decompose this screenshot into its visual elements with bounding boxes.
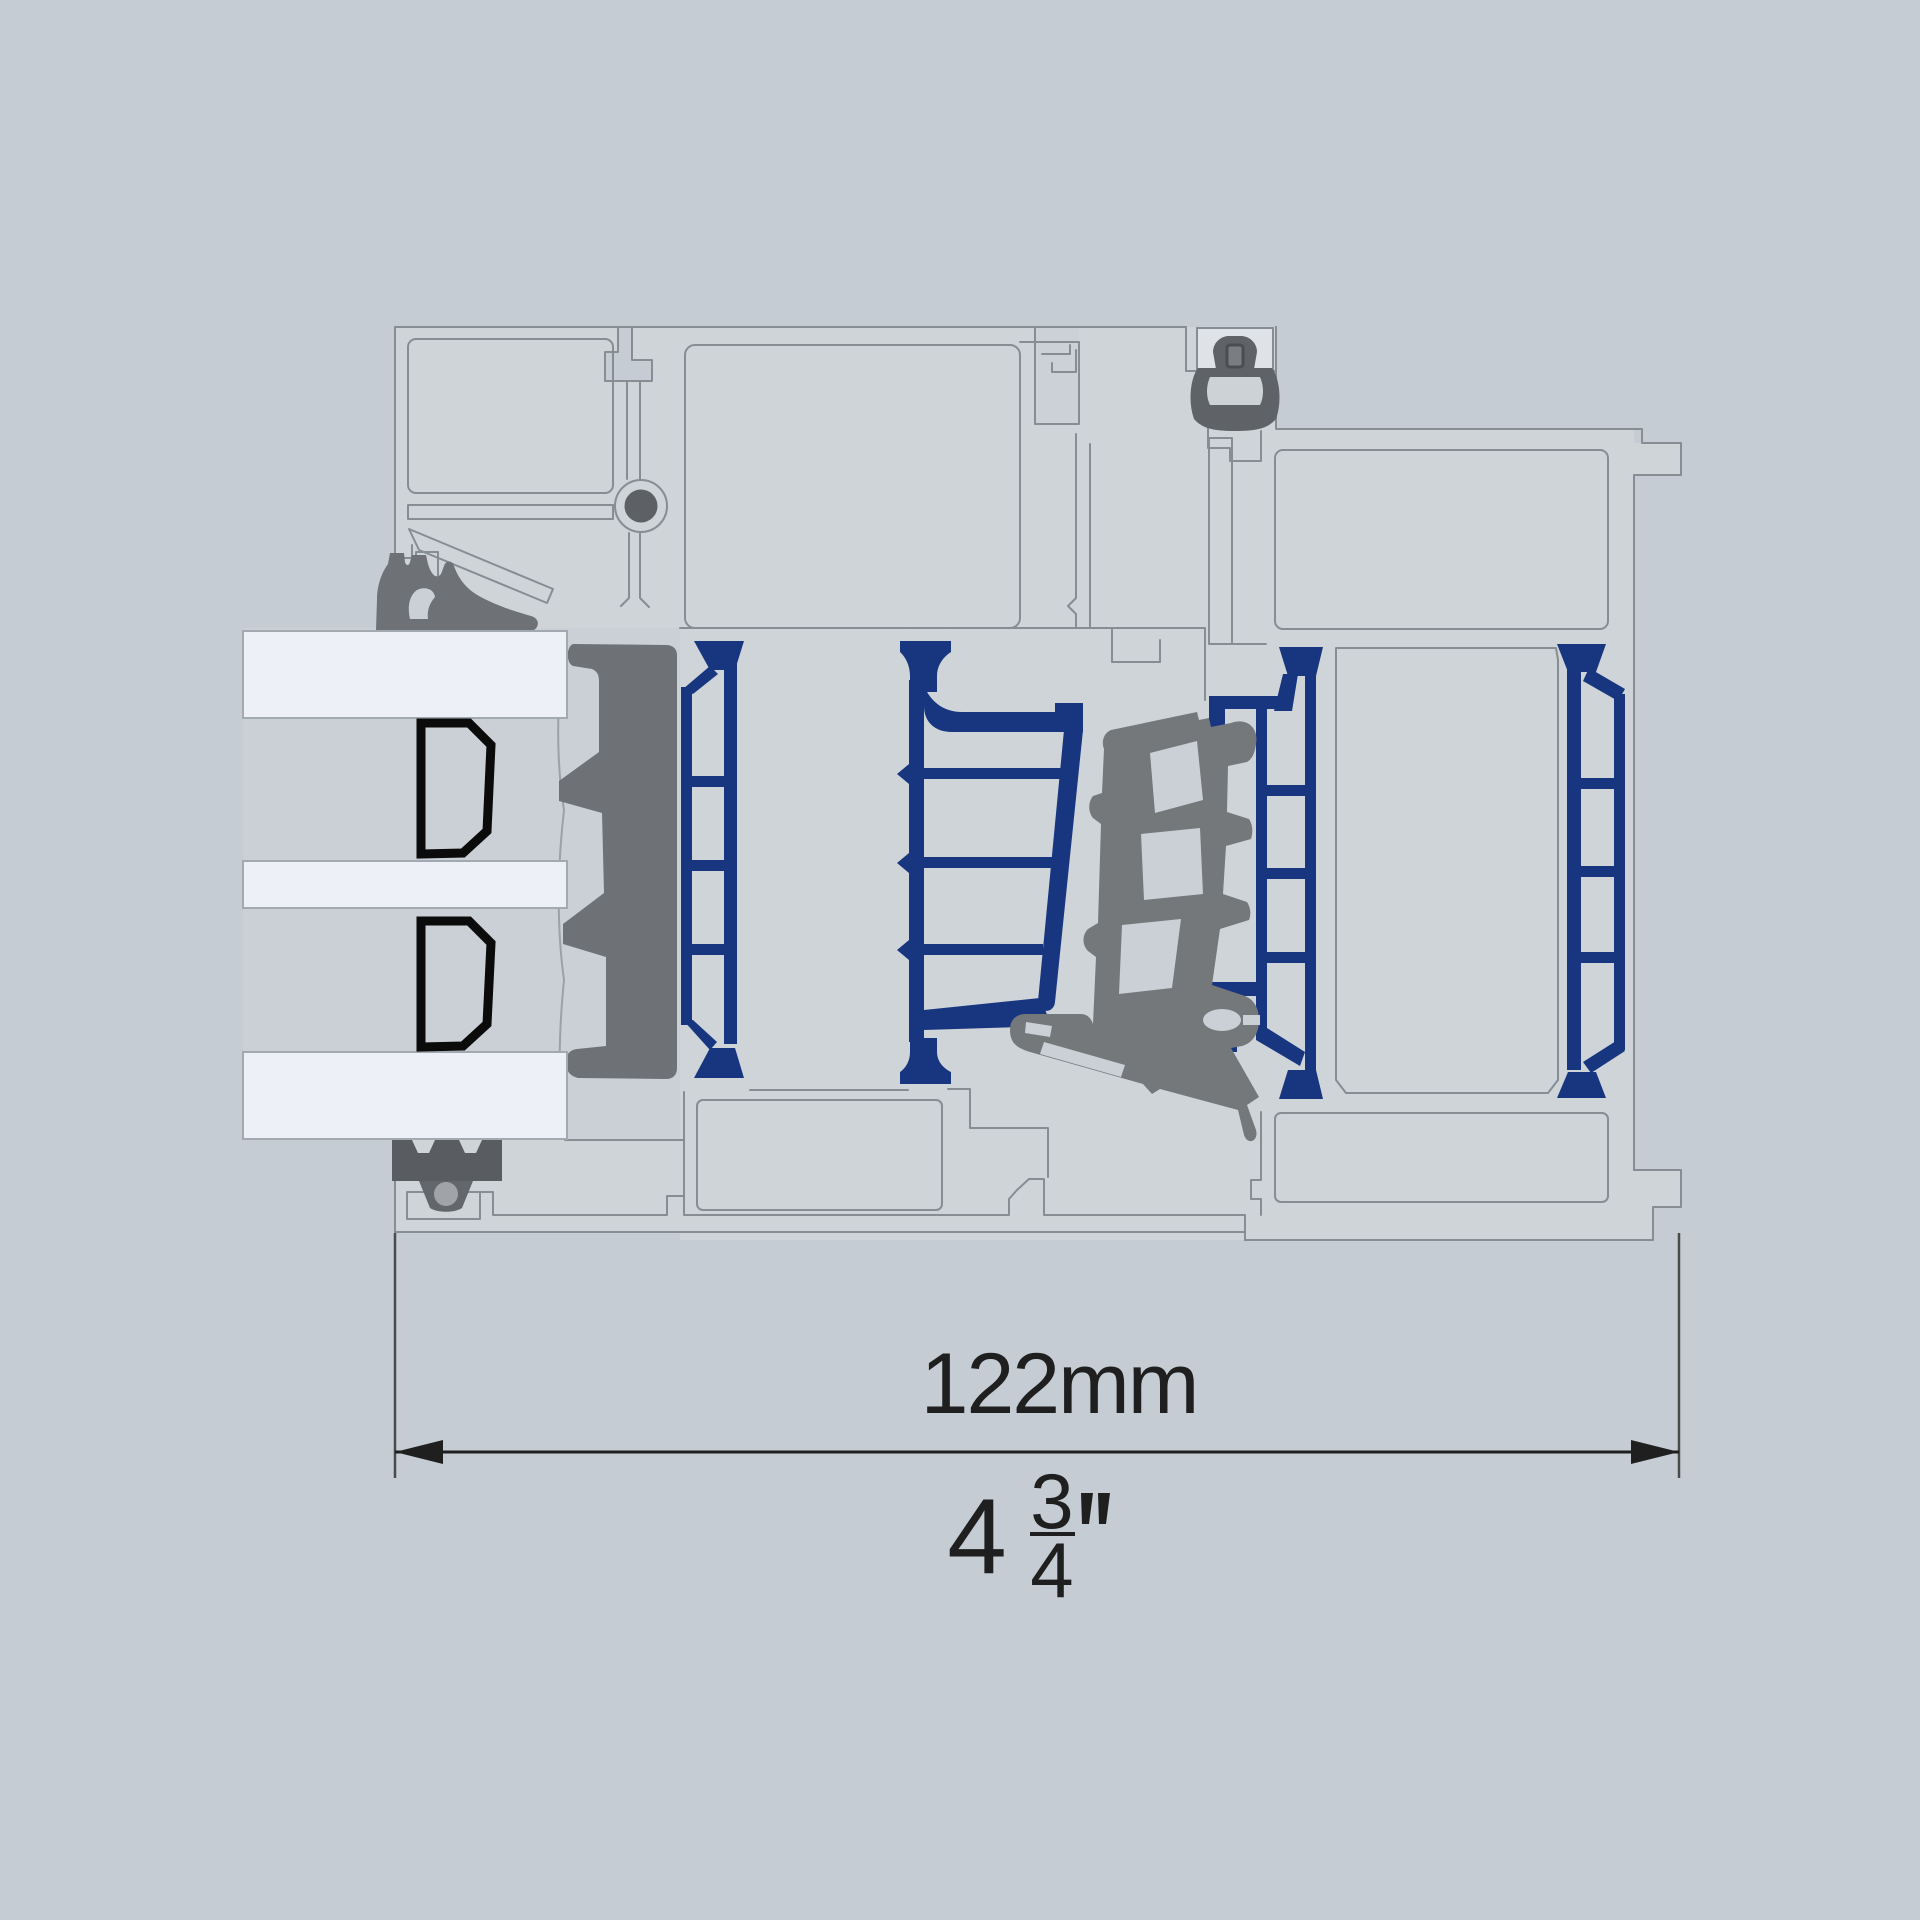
svg-text:4: 4 — [947, 1476, 1007, 1596]
svg-text:4: 4 — [1030, 1526, 1073, 1614]
svg-text:122mm: 122mm — [921, 1336, 1198, 1432]
